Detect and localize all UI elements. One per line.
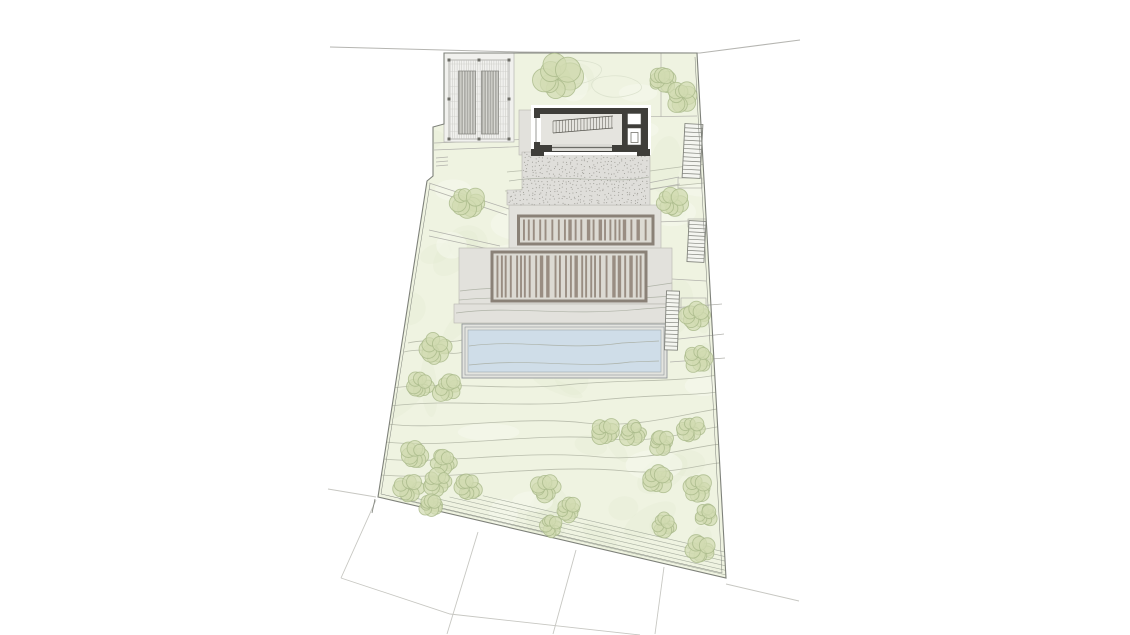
- stipple-dot: [611, 198, 612, 199]
- stipple-dot: [538, 161, 539, 162]
- stipple-dot: [568, 181, 569, 182]
- road: [330, 40, 800, 53]
- stipple-dot: [539, 203, 540, 204]
- stipple-dot: [547, 184, 548, 185]
- stipple-dot: [594, 191, 595, 192]
- stipple-dot: [611, 161, 612, 162]
- stipple-dot: [632, 160, 633, 161]
- stipple-dot: [569, 176, 570, 177]
- louver-slat: [614, 220, 616, 241]
- stipple-dot: [591, 199, 592, 200]
- stipple-dot: [615, 176, 616, 177]
- stipple-dot: [607, 164, 608, 165]
- pergola-post: [478, 138, 481, 141]
- stipple-dot: [599, 195, 600, 196]
- stipple-dot: [645, 198, 646, 199]
- stipple-dot: [640, 204, 641, 205]
- neighbor-parcel-line: [447, 532, 478, 634]
- stipple-dot: [553, 185, 554, 186]
- stipple-dot: [608, 161, 609, 162]
- stipple-dot: [535, 184, 536, 185]
- wall-foot: [637, 149, 650, 156]
- stipple-dot: [542, 190, 543, 191]
- stipple-dot: [562, 171, 563, 172]
- stipple-dot: [610, 180, 611, 181]
- neighbor-parcel-line: [341, 578, 640, 635]
- stipple-dot: [611, 174, 612, 175]
- stipple-dot: [559, 184, 560, 185]
- stipple-dot: [590, 183, 591, 184]
- stipple-dot: [589, 203, 590, 204]
- stipple-dot: [555, 166, 556, 167]
- stipple-dot: [561, 192, 562, 193]
- stipple-dot: [565, 169, 566, 170]
- tree-canopy-puff: [438, 473, 449, 484]
- stipple-dot: [554, 189, 555, 190]
- louver-slat: [516, 256, 518, 298]
- stipple-dot: [617, 164, 618, 165]
- tree-canopy-puff: [566, 497, 581, 512]
- corner-marker: [372, 499, 375, 513]
- stipple-dot: [635, 203, 636, 204]
- entry-opening: [533, 118, 541, 142]
- stipple-dot: [596, 171, 597, 172]
- stipple-dot: [533, 172, 534, 173]
- stipple-dot: [576, 192, 577, 193]
- stipple-dot: [634, 158, 635, 159]
- stipple-dot: [529, 195, 530, 196]
- louver-slat: [587, 220, 590, 241]
- stipple-dot: [554, 181, 555, 182]
- stipple-dot: [563, 181, 564, 182]
- stipple-dot: [547, 202, 548, 203]
- stipple-dot: [646, 166, 647, 167]
- stipple-dot: [534, 204, 535, 205]
- stipple-dot: [557, 162, 558, 163]
- garden-stair: [687, 221, 706, 263]
- stipple-dot: [580, 199, 581, 200]
- stipple-dot: [539, 194, 540, 195]
- stipple-dot: [623, 181, 624, 182]
- stipple-dot: [559, 174, 560, 175]
- louver-slat: [575, 220, 577, 241]
- stipple-dot: [539, 165, 540, 166]
- stipple-dot: [575, 167, 576, 168]
- stipple-dot: [614, 187, 615, 188]
- stipple-dot: [621, 159, 622, 160]
- stipple-dot: [606, 177, 607, 178]
- louver-slat: [636, 256, 638, 298]
- stipple-dot: [594, 166, 595, 167]
- stipple-dot: [546, 192, 547, 193]
- louver-slat: [590, 256, 592, 298]
- grass-patch: [406, 523, 434, 551]
- stipple-dot: [623, 184, 624, 185]
- stipple-dot: [642, 188, 643, 189]
- tree-canopy-puff: [679, 82, 695, 98]
- stipple-dot: [627, 192, 628, 193]
- tree-canopy-puff: [697, 347, 709, 359]
- stipple-dot: [641, 170, 642, 171]
- stipple-dot: [566, 198, 567, 199]
- stipple-dot: [542, 187, 543, 188]
- stipple-dot: [597, 189, 598, 190]
- stipple-dot: [591, 195, 592, 196]
- stipple-dot: [585, 187, 586, 188]
- stipple-dot: [547, 187, 548, 188]
- stipple-dot: [558, 202, 559, 203]
- stipple-dot: [616, 181, 617, 182]
- stipple-dot: [566, 175, 567, 176]
- stipple-dot: [546, 194, 547, 195]
- stipple-dot: [589, 166, 590, 167]
- stipple-dot: [573, 180, 574, 181]
- stipple-dot: [570, 168, 571, 169]
- tree-canopy-puff: [447, 375, 461, 389]
- stipple-dot: [520, 194, 521, 195]
- stipple-dot: [612, 188, 613, 189]
- stipple-dot: [593, 164, 594, 165]
- stipple-dot: [583, 173, 584, 174]
- stipple-dot: [559, 169, 560, 170]
- stipple-dot: [523, 203, 524, 204]
- stipple-dot: [563, 162, 564, 163]
- stipple-dot: [558, 194, 559, 195]
- stipple-dot: [538, 181, 539, 182]
- tree-canopy-puff: [654, 467, 670, 483]
- stipple-dot: [603, 168, 604, 169]
- stipple-dot: [545, 198, 546, 199]
- stipple-dot: [626, 183, 627, 184]
- tree-canopy-puff: [690, 417, 704, 431]
- stipple-dot: [587, 161, 588, 162]
- stipple-dot: [584, 159, 585, 160]
- stipple-dot: [584, 196, 585, 197]
- stipple-dot: [644, 156, 645, 157]
- neighbor-parcel-line: [726, 584, 799, 601]
- stipple-dot: [572, 160, 573, 161]
- stipple-dot: [618, 187, 619, 188]
- louver-slat: [564, 220, 566, 241]
- stipple-dot: [547, 168, 548, 169]
- neighbor-parcel-line: [341, 500, 376, 578]
- site-plan-drawing: [0, 0, 1130, 635]
- stipple-dot: [562, 198, 563, 199]
- stipple-dot: [634, 164, 635, 165]
- stipple-dot: [627, 168, 628, 169]
- stipple-dot: [543, 165, 544, 166]
- stipple-dot: [638, 156, 639, 157]
- stipple-dot: [532, 170, 533, 171]
- stipple-dot: [566, 164, 567, 165]
- stipple-dot: [589, 195, 590, 196]
- stipple-dot: [599, 183, 600, 184]
- louver-slat: [623, 220, 626, 241]
- stipple-dot: [592, 167, 593, 168]
- stipple-dot: [612, 191, 613, 192]
- stipple-dot: [570, 163, 571, 164]
- stipple-dot: [617, 156, 618, 157]
- stipple-dot: [531, 183, 532, 184]
- stipple-dot: [574, 203, 575, 204]
- stipple-dot: [599, 172, 600, 173]
- stipple-dot: [600, 162, 601, 163]
- stipple-dot: [603, 157, 604, 158]
- stipple-dot: [622, 177, 623, 178]
- stipple-dot: [546, 171, 547, 172]
- stipple-dot: [611, 184, 612, 185]
- stipple-dot: [639, 171, 640, 172]
- louver-frame: [492, 252, 646, 301]
- stipple-dot: [598, 169, 599, 170]
- stipple-dot: [536, 158, 537, 159]
- stipple-dot: [532, 162, 533, 163]
- stipple-dot: [614, 184, 615, 185]
- stipple-dot: [598, 203, 599, 204]
- stipple-dot: [585, 183, 586, 184]
- tree: [419, 494, 443, 517]
- stipple-dot: [563, 203, 564, 204]
- stipple-dot: [646, 160, 647, 161]
- stipple-dot: [599, 187, 600, 188]
- louver-slat: [570, 256, 572, 298]
- stipple-dot: [524, 152, 525, 153]
- stipple-dot: [604, 177, 605, 178]
- stipple-dot: [644, 190, 645, 191]
- stipple-dot: [611, 167, 612, 168]
- tree-canopy-puff: [441, 452, 453, 464]
- stipple-dot: [601, 166, 602, 167]
- stipple-dot: [615, 200, 616, 201]
- stipple-dot: [622, 194, 623, 195]
- stipple-dot: [605, 161, 606, 162]
- stipple-dot: [596, 158, 597, 159]
- stipple-dot: [637, 194, 638, 195]
- tree-canopy-puff: [432, 336, 447, 351]
- stipple-dot: [608, 186, 609, 187]
- stipple-dot: [643, 196, 644, 197]
- stipple-dot: [534, 199, 535, 200]
- stipple-dot: [528, 156, 529, 157]
- stipple-dot: [568, 204, 569, 205]
- stipple-dot: [614, 158, 615, 159]
- tree-canopy-puff: [555, 57, 580, 82]
- tree: [683, 475, 711, 502]
- stipple-dot: [580, 185, 581, 186]
- stipple-dot: [557, 191, 558, 192]
- stipple-dot: [586, 191, 587, 192]
- stipple-dot: [607, 198, 608, 199]
- stipple-dot: [616, 170, 617, 171]
- stipple-dot: [611, 202, 612, 203]
- stipple-dot: [526, 171, 527, 172]
- stipple-dot: [507, 192, 508, 193]
- stipple-dot: [542, 173, 543, 174]
- stipple-dot: [543, 200, 544, 201]
- stipple-dot: [512, 200, 513, 201]
- stipple-dot: [547, 158, 548, 159]
- stipple-dot: [644, 172, 645, 173]
- tree: [695, 504, 717, 526]
- stipple-dot: [625, 188, 626, 189]
- stipple-dot: [569, 158, 570, 159]
- stipple-dot: [596, 176, 597, 177]
- stipple-dot: [539, 187, 540, 188]
- terrace-platform: [454, 304, 670, 323]
- stipple-dot: [558, 181, 559, 182]
- louver-slat: [551, 220, 553, 241]
- stipple-dot: [618, 195, 619, 196]
- stipple-dot: [615, 166, 616, 167]
- stipple-dot: [569, 193, 570, 194]
- tree-canopy-puff: [693, 304, 709, 320]
- louver-slat: [529, 256, 531, 298]
- stipple-dot: [638, 168, 639, 169]
- stipple-dot: [625, 162, 626, 163]
- louver-slat: [558, 220, 560, 241]
- stipple-dot: [551, 180, 552, 181]
- stipple-dot: [604, 194, 605, 195]
- stipple-dot: [631, 200, 632, 201]
- stipple-dot: [588, 188, 589, 189]
- stipple-dot: [569, 197, 570, 198]
- stipple-dot: [603, 183, 604, 184]
- stipple-dot: [582, 172, 583, 173]
- stipple-dot: [618, 185, 619, 186]
- stipple-dot: [554, 198, 555, 199]
- stipple-dot: [622, 190, 623, 191]
- stipple-dot: [584, 177, 585, 178]
- stipple-dot: [535, 191, 536, 192]
- stipple-dot: [646, 187, 647, 188]
- stipple-dot: [610, 195, 611, 196]
- stipple-dot: [618, 192, 619, 193]
- stipple-dot: [597, 194, 598, 195]
- stipple-dot: [554, 176, 555, 177]
- stipple-dot: [622, 170, 623, 171]
- pergola-post: [448, 59, 451, 62]
- stipple-dot: [576, 160, 577, 161]
- stipple-dot: [640, 164, 641, 165]
- stipple-dot: [618, 170, 619, 171]
- louver-slat: [594, 256, 596, 298]
- stipple-dot: [591, 201, 592, 202]
- stipple-dot: [588, 158, 589, 159]
- stipple-dot: [554, 168, 555, 169]
- stipple-dot: [596, 184, 597, 185]
- grass-patch: [532, 536, 565, 573]
- stipple-dot: [589, 167, 590, 168]
- pergola-post: [448, 138, 451, 141]
- louver-slat: [593, 220, 595, 241]
- tree-canopy-puff: [550, 516, 562, 528]
- tree-canopy-puff: [631, 422, 641, 432]
- stipple-dot: [532, 188, 533, 189]
- stipple-dot: [582, 170, 583, 171]
- louver-slat: [604, 220, 606, 241]
- stipple-dot: [608, 173, 609, 174]
- stipple-dot: [619, 200, 620, 201]
- stipple-dot: [629, 192, 630, 193]
- stipple-dot: [523, 177, 524, 178]
- tree-canopy-puff: [702, 505, 716, 519]
- road-edge-line: [330, 40, 800, 53]
- stipple-dot: [572, 166, 573, 167]
- stipple-dot: [646, 168, 647, 169]
- neighbor-parcel-line: [655, 567, 664, 634]
- stipple-dot: [594, 168, 595, 169]
- tree-canopy-puff: [671, 189, 687, 205]
- stipple-dot: [523, 180, 524, 181]
- stipple-dot: [607, 180, 608, 181]
- stipple-dot: [542, 157, 543, 158]
- stipple-dot: [578, 196, 579, 197]
- stipple-dot: [614, 195, 615, 196]
- stipple-dot: [534, 194, 535, 195]
- stipple-dot: [582, 156, 583, 157]
- stipple-dot: [532, 204, 533, 205]
- stipple-dot: [535, 170, 536, 171]
- stipple-dot: [630, 169, 631, 170]
- stipple-dot: [513, 192, 514, 193]
- stipple-dot: [608, 169, 609, 170]
- skylight: [628, 114, 642, 125]
- stipple-dot: [597, 162, 598, 163]
- stipple-dot: [592, 191, 593, 192]
- stipple-dot: [610, 177, 611, 178]
- stipple-dot: [547, 181, 548, 182]
- stipple-dot: [542, 197, 543, 198]
- stipple-dot: [626, 201, 627, 202]
- stipple-dot: [620, 204, 621, 205]
- stipple-dot: [514, 203, 515, 204]
- louver-slat: [555, 256, 557, 298]
- stipple-dot: [562, 183, 563, 184]
- stipple-dot: [584, 160, 585, 161]
- tree: [668, 82, 697, 113]
- stipple-dot: [627, 177, 628, 178]
- stipple-dot: [581, 175, 582, 176]
- stipple-dot: [642, 181, 643, 182]
- stipple-dot: [597, 200, 598, 201]
- louvered-roof-2: [492, 252, 646, 301]
- stipple-dot: [593, 172, 594, 173]
- stipple-dot: [561, 168, 562, 169]
- grass-patch: [458, 424, 520, 441]
- stipple-dot: [556, 156, 557, 157]
- stipple-dot: [631, 158, 632, 159]
- stipple-dot: [629, 187, 630, 188]
- louver-slat: [609, 220, 611, 241]
- stipple-dot: [584, 166, 585, 167]
- site-plan-canvas: [0, 0, 1130, 635]
- louver-slat: [505, 256, 507, 298]
- stipple-dot: [624, 173, 625, 174]
- stipple-dot: [580, 194, 581, 195]
- stipple-dot: [578, 200, 579, 201]
- stipple-dot: [532, 195, 533, 196]
- stipple-dot: [577, 163, 578, 164]
- tree-canopy-puff: [660, 431, 674, 445]
- stipple-dot: [622, 198, 623, 199]
- stipple-dot: [549, 204, 550, 205]
- stipple-dot: [510, 196, 511, 197]
- tree-canopy-puff: [695, 475, 711, 491]
- stipple-dot: [543, 202, 544, 203]
- stipple-dot: [619, 162, 620, 163]
- stipple-dot: [631, 202, 632, 203]
- stipple-dot: [637, 199, 638, 200]
